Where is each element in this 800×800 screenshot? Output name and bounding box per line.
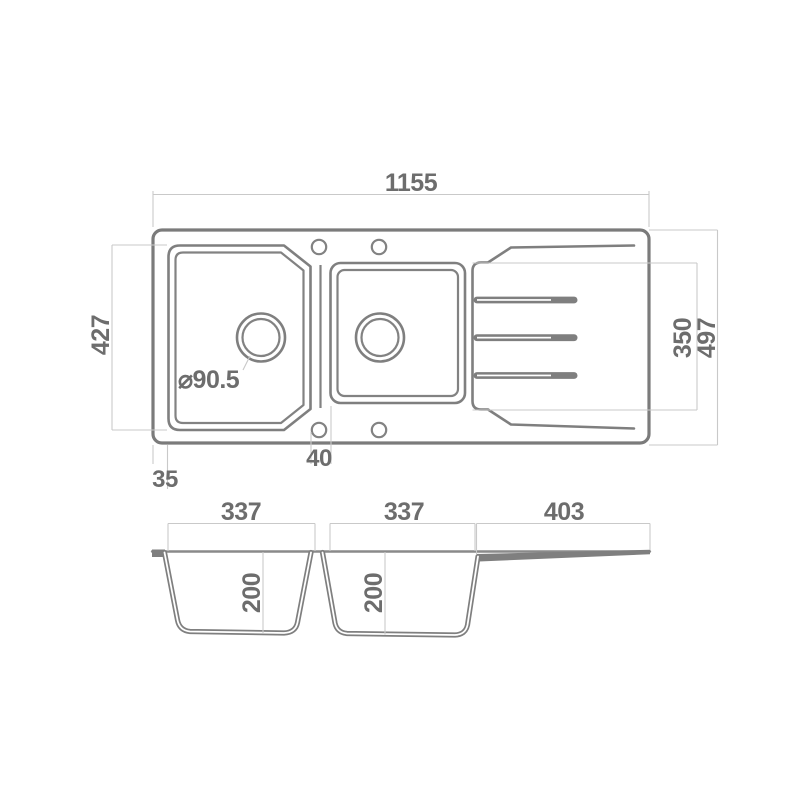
faucet-hole-left [312, 240, 326, 254]
left-bowl-drain [237, 314, 285, 362]
drain-grooves [474, 297, 578, 379]
mounting-hole-right [372, 423, 386, 437]
mounting-hole-left [312, 423, 326, 437]
dim-drain-diameter: ⌀90.5 [178, 366, 240, 394]
section-view-dimensions: 337 337 403 200 200 [168, 498, 650, 635]
dim-rim-offset: 35 [152, 466, 178, 493]
dim-overall-width: 1155 [385, 169, 438, 197]
section-bowl2-wall [323, 553, 479, 636]
left-bowl-outer-edge [169, 246, 311, 431]
dim-bowl1-depth: 200 [238, 573, 266, 613]
faucet-hole-right [372, 240, 386, 254]
dim-divider-width: 40 [306, 445, 332, 472]
sink-section-view: 337 337 403 200 200 [152, 498, 650, 635]
sink-drawing-svg: 1155 427 350 497 35 40 [0, 0, 800, 800]
dim-overall-depth: 497 [693, 318, 721, 358]
dim-bowl2-width: 337 [384, 498, 424, 526]
middle-bowl-drain [356, 314, 404, 362]
dim-bowl2-depth: 200 [360, 573, 388, 613]
dim-bowl1-width: 337 [221, 498, 261, 526]
dim-drainer-width: 403 [544, 498, 584, 526]
technical-drawing: 1155 427 350 497 35 40 [0, 0, 800, 800]
dim-bowls-height: 427 [87, 315, 115, 355]
sink-top-view: 1155 427 350 497 35 40 [87, 169, 721, 493]
